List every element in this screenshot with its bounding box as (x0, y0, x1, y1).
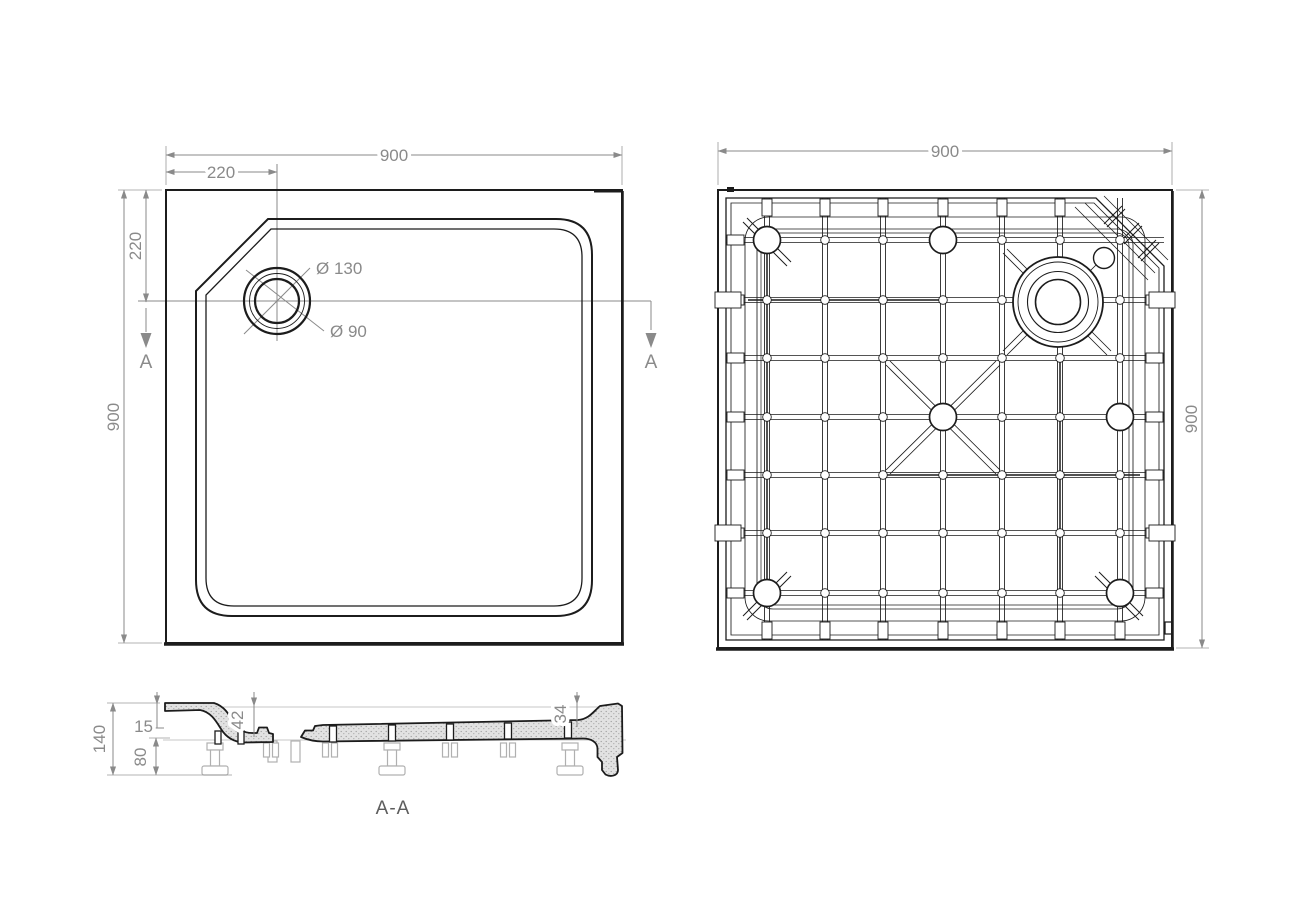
rib-node-ring (879, 354, 888, 363)
rib-node-ring (763, 471, 772, 480)
rib-node-ring (879, 236, 888, 245)
stud-foot (501, 743, 516, 757)
shower-tray-drawing: 900 220 900 220 Ø 130 Ø 90 A A (0, 0, 1300, 920)
wall-rib-stub (938, 199, 948, 216)
rib-node-ring (939, 296, 948, 305)
wall-rib-stub (1115, 622, 1125, 639)
wall-rib-stub (1146, 412, 1163, 422)
pedestal-foot (379, 743, 405, 775)
wall-rib-stub (762, 622, 772, 639)
rib-node-ring (821, 589, 830, 598)
foot-mount-circle (930, 404, 957, 431)
plan-height-dim-label: 900 (104, 403, 123, 431)
rib-node-ring (879, 296, 888, 305)
rib-node-ring (763, 354, 772, 363)
wall-rib-stub (820, 622, 830, 639)
wall-rib-stub (878, 622, 888, 639)
rib-node-ring (998, 471, 1007, 480)
rib-node-ring (939, 354, 948, 363)
rib-node-ring (1056, 236, 1065, 245)
section-title-label: A-A (376, 798, 411, 819)
rib-node-ring (1116, 471, 1125, 480)
rib-node-ring (1056, 354, 1065, 363)
stud-foot (323, 743, 338, 757)
section-cut-markers: A A (140, 308, 658, 373)
technical-drawing-sheet: 900 220 900 220 Ø 130 Ø 90 A A (0, 0, 1300, 920)
rib-node-ring (821, 413, 830, 422)
plan-outline (164, 190, 624, 644)
plan-dimensions: 900 220 900 220 Ø 130 Ø 90 (104, 146, 622, 643)
wall-rib-stub (1146, 353, 1163, 363)
rib-node-ring (1056, 471, 1065, 480)
rib-node-ring (1056, 413, 1065, 422)
edge-depth-dim-label: 34 (551, 705, 570, 724)
rib-node-ring (998, 529, 1007, 538)
wall-rib-stub (1146, 470, 1163, 480)
plan-drain-offset-x-label: 220 (207, 163, 235, 182)
wall-rib-stub (1146, 588, 1163, 598)
section-marker-a-left: A (140, 352, 153, 373)
rib-node-ring (939, 589, 948, 598)
wall-rib-stub (727, 588, 744, 598)
rib-node-ring (821, 354, 830, 363)
foot-mount-circle (1107, 580, 1134, 607)
rib-node-ring (821, 529, 830, 538)
wall-rib-stub (727, 412, 744, 422)
rib-node-ring (998, 589, 1007, 598)
wall-rib-stub (820, 199, 830, 216)
rib-node-ring (879, 589, 888, 598)
rib-node-ring (763, 296, 772, 305)
rib-node-ring (879, 471, 888, 480)
drain-trap-hidden (291, 741, 300, 762)
rib-node-ring (879, 413, 888, 422)
section-arrow-right (646, 333, 657, 348)
wall-rib-stub (938, 622, 948, 639)
wall-rib-stub (1055, 199, 1065, 216)
drain-outer-diameter-label: Ø 130 (316, 259, 362, 278)
rib-node-ring (998, 296, 1007, 305)
section-arrow-left (141, 333, 152, 348)
foot-height-dim-label: 80 (131, 748, 150, 767)
bottom-dimensions: 900 900 (718, 142, 1209, 648)
rib-node-ring (998, 236, 1007, 245)
rib-node-ring (763, 413, 772, 422)
wall-rib-stub (762, 199, 772, 216)
plan-width-dim-label: 900 (380, 146, 408, 165)
drain-boss (1003, 248, 1115, 356)
rib-node-ring (763, 529, 772, 538)
section-view: 140 15 80 42 34 A-A (90, 692, 626, 819)
rib-node-ring (821, 471, 830, 480)
wall-rib-stub (997, 622, 1007, 639)
rib-node-ring (1116, 529, 1125, 538)
drain-inner-diameter-label: Ø 90 (330, 322, 367, 341)
rib-node-ring (1056, 529, 1065, 538)
rib-node-ring (821, 236, 830, 245)
support-feet (202, 743, 583, 775)
stud-foot (443, 743, 458, 757)
bottom-width-dim-label: 900 (931, 142, 959, 161)
bottom-view: 900 900 (715, 142, 1209, 649)
wall-rib-stub (997, 199, 1007, 216)
wall-rib-stub (727, 235, 744, 245)
plan-view: 900 220 900 220 Ø 130 Ø 90 A A (104, 146, 658, 644)
rib-node-ring (879, 529, 888, 538)
rib-node-ring (939, 529, 948, 538)
plan-drain-offset-y-label: 220 (126, 232, 145, 260)
bottom-height-dim-label: 900 (1182, 405, 1201, 433)
total-height-dim-label: 140 (90, 725, 109, 753)
section-marker-a-right: A (645, 352, 658, 373)
rib-node-ring (1116, 354, 1125, 363)
drain-depth-dim-label: 42 (228, 711, 247, 730)
wall-rib-stub (1055, 622, 1065, 639)
rib-node-ring (1056, 589, 1065, 598)
wall-rib-stub (878, 199, 888, 216)
wall-rib-stub (727, 353, 744, 363)
wall-rib-stub (727, 470, 744, 480)
rib-node-ring (1116, 236, 1125, 245)
basin-outline (196, 219, 592, 616)
rib-node-ring (939, 471, 948, 480)
foot-mount-circle (1107, 404, 1134, 431)
pedestal-foot (202, 743, 228, 775)
foot-mount-circle (754, 227, 781, 254)
rib-node-ring (1116, 296, 1125, 305)
drain-vent-circle (1094, 248, 1115, 269)
rim-height-dim-label: 15 (134, 717, 153, 736)
rib-node-ring (998, 354, 1007, 363)
rib-node-ring (821, 296, 830, 305)
foot-mount-circle (754, 580, 781, 607)
pedestal-foot (557, 743, 583, 775)
rib-node-ring (998, 413, 1007, 422)
foot-mount-circle (930, 227, 957, 254)
